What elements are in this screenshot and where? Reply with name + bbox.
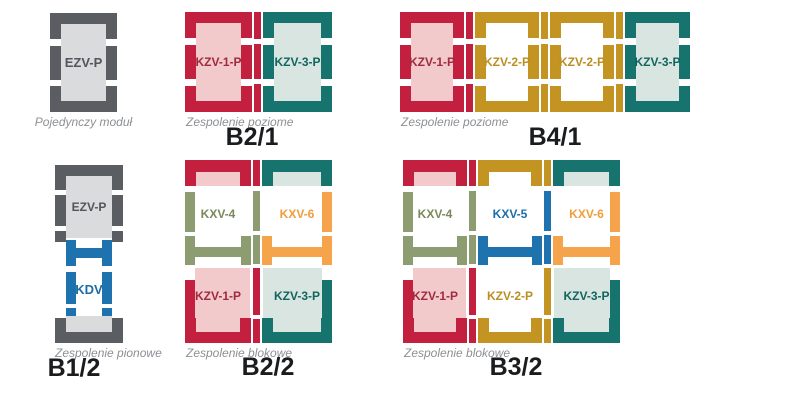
joining-strip-segment	[254, 84, 261, 112]
module-label: KZV-3-P	[633, 54, 682, 70]
joining-strip-segment	[544, 319, 551, 343]
frame-bottom-corner	[679, 86, 690, 112]
diagram-caption: Pojedynczy moduł	[30, 116, 137, 129]
frame-bottom-corner	[625, 86, 636, 112]
top-flashing-corner	[185, 160, 196, 186]
top-flashing-fill	[564, 172, 609, 186]
frame-bottom-corner	[550, 86, 561, 112]
frame-top-corner	[453, 12, 464, 38]
module-label: EZV-P	[58, 55, 109, 71]
frame-top-corner	[321, 12, 332, 38]
joining-strip-segment	[469, 268, 476, 315]
module-label: KZV-1-P	[408, 54, 456, 70]
module-label: KZV-3-P	[270, 288, 324, 304]
frame-top-corner	[106, 13, 117, 39]
top-flashing-fill	[196, 172, 240, 186]
joining-strip-segment	[544, 160, 551, 186]
joining-strip-segment	[254, 12, 261, 39]
frame-top-corner	[112, 165, 123, 190]
frame-top-corner	[603, 12, 614, 38]
joining-strip-segment	[254, 44, 261, 79]
joining-strip-segment	[253, 235, 260, 264]
kzv-bottom-bar	[185, 332, 251, 343]
diagram-b2-1: Zespolenie poziome B2/1 KZV-1-PKZV-3-P	[185, 12, 332, 112]
diagram-caption: Zespolenie poziome	[401, 116, 508, 129]
frame-top-corner	[550, 12, 561, 38]
joining-strip-segment	[541, 44, 548, 79]
frame-top-corner	[475, 12, 486, 38]
joining-strip-segment	[616, 12, 623, 39]
kzv-bottom-bar	[553, 332, 620, 343]
diagram-b4-1: Zespolenie poziome B4/1 KZV-1-PKZV-2-PKZ…	[400, 12, 690, 112]
frame-top-corner	[263, 12, 274, 38]
module-label: KXV-4	[411, 206, 459, 222]
module-label: KZV-1-P	[411, 288, 459, 304]
frame-bottom-corner	[400, 86, 411, 112]
joining-strip-segment	[544, 191, 551, 231]
frame-top-corner	[55, 165, 66, 190]
module-label: KZV-2-P	[483, 54, 531, 70]
joining-strip-segment	[544, 235, 551, 264]
top-flashing-fill	[273, 172, 321, 186]
top-flashing-corner	[262, 160, 273, 186]
joining-strip-segment	[466, 44, 473, 79]
kxv-h-bar	[561, 247, 612, 257]
frame-bottom-corner	[185, 86, 196, 112]
joining-strip-segment	[253, 160, 260, 186]
kxv-h-bar	[193, 247, 243, 257]
flashing-combinations-figure: { "palette": { "red": {"frame": "#c2203e…	[0, 0, 800, 400]
frame-top-corner	[528, 12, 539, 38]
joining-strip-segment	[469, 191, 476, 231]
frame-side-bar	[112, 195, 123, 226]
module-fill	[66, 316, 112, 332]
kzv-bottom-bar	[262, 332, 332, 343]
module-label: KXV-5	[486, 206, 534, 222]
diagram-single-module: Pojedynczy moduł EZV-P	[50, 13, 117, 112]
joining-strip-segment	[541, 84, 548, 112]
kzv-bottom-bar	[478, 332, 542, 343]
frame-top-corner	[679, 12, 690, 38]
joining-strip-segment	[616, 84, 623, 112]
module-label: KZV-1-P	[193, 288, 243, 304]
module-label: KXV-6	[561, 206, 612, 222]
top-flashing-fill	[489, 172, 531, 186]
joining-strip-segment	[541, 12, 548, 39]
joining-strip-segment	[466, 12, 473, 39]
frame-top-corner	[185, 12, 196, 38]
joining-strip-segment	[469, 160, 476, 186]
diagram-b1-2: Zespolenie pionowe B1/2 EZV-PKDV	[55, 165, 123, 343]
frame-bottom-corner	[528, 86, 539, 112]
top-flashing-corner	[609, 160, 620, 186]
frame-side-bar	[55, 195, 66, 226]
top-flashing-corner	[456, 160, 467, 186]
frame-bottom-corner	[106, 86, 117, 112]
top-flashing-corner	[553, 160, 564, 186]
module-label: KXV-4	[193, 206, 243, 222]
joining-strip-segment	[616, 44, 623, 79]
kxv-h-bar	[486, 247, 534, 257]
frame-bottom-corner	[50, 86, 61, 112]
module-label: KZV-3-P	[271, 54, 324, 70]
frame-bottom-corner	[263, 86, 274, 112]
frame-side-tab	[112, 231, 123, 242]
joining-strip-segment	[544, 268, 551, 315]
joining-strip-segment	[253, 319, 260, 343]
top-flashing-fill	[414, 172, 456, 186]
kxv-h-bar	[411, 247, 459, 257]
frame-top-corner	[241, 12, 252, 38]
module-label: EZV-P	[66, 199, 112, 215]
frame-side-tab	[55, 231, 66, 242]
joining-strip-segment	[469, 235, 476, 264]
frame-bottom-bar	[55, 332, 123, 343]
frame-top-corner	[50, 13, 61, 39]
module-label: KZV-1-P	[193, 54, 244, 70]
diagram-code-label: B2/1	[192, 124, 312, 151]
frame-bottom-corner	[241, 86, 252, 112]
frame-bottom-corner	[475, 86, 486, 112]
top-flashing-corner	[531, 160, 542, 186]
joining-strip-segment	[469, 319, 476, 343]
module-label: KZV-2-P	[486, 288, 534, 304]
joining-strip-segment	[466, 84, 473, 112]
frame-bottom-corner	[321, 86, 332, 112]
joining-strip-segment	[253, 191, 260, 231]
module-label: KXV-6	[270, 206, 324, 222]
joining-strip-segment	[253, 268, 260, 315]
kzv-bottom-bar	[403, 332, 467, 343]
frame-bottom-corner	[603, 86, 614, 112]
module-label: KZV-2-P	[558, 54, 606, 70]
module-label: KDV	[66, 282, 112, 298]
module-label: KZV-3-P	[561, 288, 612, 304]
top-flashing-corner	[478, 160, 489, 186]
diagram-code-label: B3/2	[456, 354, 576, 381]
diagram-code-label: B4/1	[495, 124, 615, 151]
diagram-code-label: B1/2	[14, 355, 134, 382]
frame-top-corner	[400, 12, 411, 38]
diagram-code-label: B2/2	[208, 354, 328, 381]
top-flashing-corner	[403, 160, 414, 186]
kdv-h-bar	[66, 248, 112, 258]
frame-top-corner	[625, 12, 636, 38]
frame-bottom-corner	[453, 86, 464, 112]
diagram-b2-2: Zespolenie blokowe B2/2 KXV-4KZV-1-PKXV-…	[185, 160, 332, 343]
kxv-h-bar	[270, 247, 324, 257]
diagram-b3-2: Zespolenie blokowe B3/2 KXV-4KZV-1-PKXV-…	[403, 160, 620, 343]
top-flashing-corner	[240, 160, 251, 186]
top-flashing-corner	[321, 160, 332, 186]
